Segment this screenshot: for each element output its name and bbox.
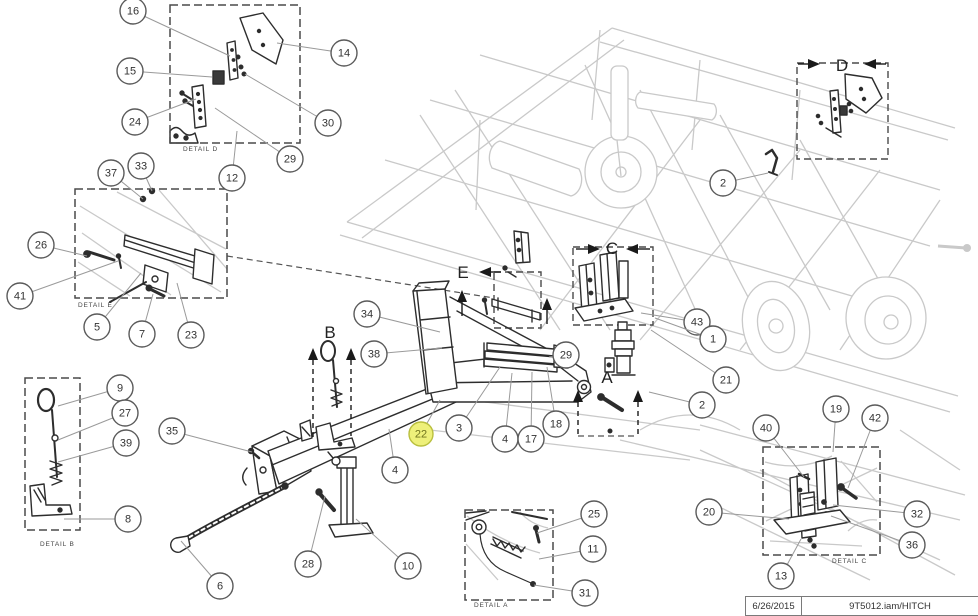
callout-number: 9 xyxy=(117,383,123,395)
detail-label-B: DETAIL B xyxy=(40,541,75,548)
callout-number: 43 xyxy=(691,317,703,329)
callout-26[interactable]: 26 xyxy=(28,232,87,258)
callout-number: 29 xyxy=(560,350,572,362)
callout-number: 13 xyxy=(775,571,787,583)
detail-label-D: DETAIL D xyxy=(183,146,218,153)
view-letter-E: E xyxy=(457,263,468,282)
title-block: 6/26/2015 9T5012.iam/HITCH xyxy=(745,596,978,616)
projection-dashed-line xyxy=(227,256,494,298)
callout-2[interactable]: 2 xyxy=(649,392,715,418)
callout-14[interactable]: 14 xyxy=(277,40,357,66)
callout-number: 27 xyxy=(119,408,131,420)
detail-label-E: DETAIL E xyxy=(78,302,113,309)
callout-number: 12 xyxy=(226,173,238,185)
callout-number: 40 xyxy=(760,423,772,435)
callout-number: 32 xyxy=(911,509,923,521)
callout-12[interactable]: 12 xyxy=(219,131,245,191)
callout-number: 28 xyxy=(302,559,314,571)
callout-number: 25 xyxy=(588,509,600,521)
callout-35[interactable]: 35 xyxy=(159,418,252,452)
callout-43[interactable]: 43 xyxy=(641,309,710,335)
leader-line xyxy=(133,11,230,56)
callout-16[interactable]: 16 xyxy=(120,0,230,56)
callout-number: 42 xyxy=(869,413,881,425)
view-pointer-arrow xyxy=(864,59,886,69)
callout-number: 21 xyxy=(720,375,732,387)
callout-number: 10 xyxy=(402,561,414,573)
callout-number: 23 xyxy=(185,330,197,342)
callout-10[interactable]: 10 xyxy=(356,519,421,579)
callout-13[interactable]: 13 xyxy=(768,539,801,589)
callout-number: 34 xyxy=(361,309,373,321)
callout-number: 5 xyxy=(94,322,100,334)
callout-number: 4 xyxy=(392,465,398,477)
detail-label-C: DETAIL C xyxy=(832,558,867,565)
callout-number: 4 xyxy=(502,434,508,446)
callout-number: 20 xyxy=(703,507,715,519)
view-pointer-arrow xyxy=(798,59,820,69)
callout-28[interactable]: 28 xyxy=(295,496,325,577)
callout-number: 17 xyxy=(525,434,537,446)
parts-diagram-page: DETAIL DDETAIL EDETAIL BDETAIL ADETAIL C… xyxy=(0,0,978,616)
title-block-document: 9T5012.iam/HITCH xyxy=(802,597,978,615)
callout-24[interactable]: 24 xyxy=(122,99,196,135)
callout-33[interactable]: 33 xyxy=(128,153,154,191)
callout-number: 37 xyxy=(105,168,117,180)
callout-number: 38 xyxy=(368,349,380,361)
view-letter-A: A xyxy=(601,368,613,387)
callout-19[interactable]: 19 xyxy=(823,396,849,452)
callout-number: 41 xyxy=(14,291,26,303)
callout-number: 11 xyxy=(587,544,598,556)
callout-number: 3 xyxy=(456,423,462,435)
view-letter-D: D xyxy=(836,56,848,75)
callout-number: 24 xyxy=(129,117,141,129)
callout-number: 2 xyxy=(720,178,726,190)
callout-30[interactable]: 30 xyxy=(245,74,341,136)
callout-31[interactable]: 31 xyxy=(534,580,598,606)
view-pointer-arrow xyxy=(479,267,501,277)
callout-6[interactable]: 6 xyxy=(181,541,233,599)
callout-number: 1 xyxy=(710,334,716,346)
view-letter-B: B xyxy=(324,323,335,342)
callout-number: 30 xyxy=(322,118,334,130)
callout-number: 18 xyxy=(550,419,562,431)
view-pointer-arrow xyxy=(576,244,600,254)
callout-2[interactable]: 2 xyxy=(710,170,768,196)
callout-number: 7 xyxy=(139,329,145,341)
callout-number: 36 xyxy=(906,540,918,552)
view-letter-C: C xyxy=(606,239,618,258)
callout-23[interactable]: 23 xyxy=(177,283,204,348)
callout-7[interactable]: 7 xyxy=(129,294,155,347)
callout-number: 2 xyxy=(699,400,705,412)
callout-number: 22 xyxy=(415,429,427,441)
callout-number: 39 xyxy=(120,438,132,450)
callout-number: 33 xyxy=(135,161,147,173)
callout-number: 15 xyxy=(124,66,136,78)
callout-number: 26 xyxy=(35,240,47,252)
callout-15[interactable]: 15 xyxy=(117,58,212,84)
pointer-arrow-layer xyxy=(308,59,886,438)
callout-number: 35 xyxy=(166,426,178,438)
callout-number: 19 xyxy=(830,404,842,416)
hitch-parts-diagram: DETAIL DDETAIL EDETAIL BDETAIL ADETAIL C… xyxy=(0,0,978,616)
callout-11[interactable]: 11 xyxy=(539,536,606,562)
callout-29[interactable]: 29 xyxy=(215,108,303,172)
callout-number: 31 xyxy=(579,588,591,600)
leader-line xyxy=(245,74,328,123)
callout-4[interactable]: 4 xyxy=(382,429,408,483)
callout-number: 29 xyxy=(284,154,296,166)
callout-number: 14 xyxy=(338,48,350,60)
source-box-E xyxy=(494,272,541,328)
view-pointer-arrow xyxy=(626,244,650,254)
callout-number: 8 xyxy=(125,514,131,526)
title-block-date: 6/26/2015 xyxy=(746,597,802,615)
callout-number: 6 xyxy=(217,581,223,593)
detail-label-A: DETAIL A xyxy=(474,602,508,609)
callout-number: 16 xyxy=(127,6,139,18)
callout-8[interactable]: 8 xyxy=(64,506,141,532)
view-pointer-arrow xyxy=(542,298,552,324)
